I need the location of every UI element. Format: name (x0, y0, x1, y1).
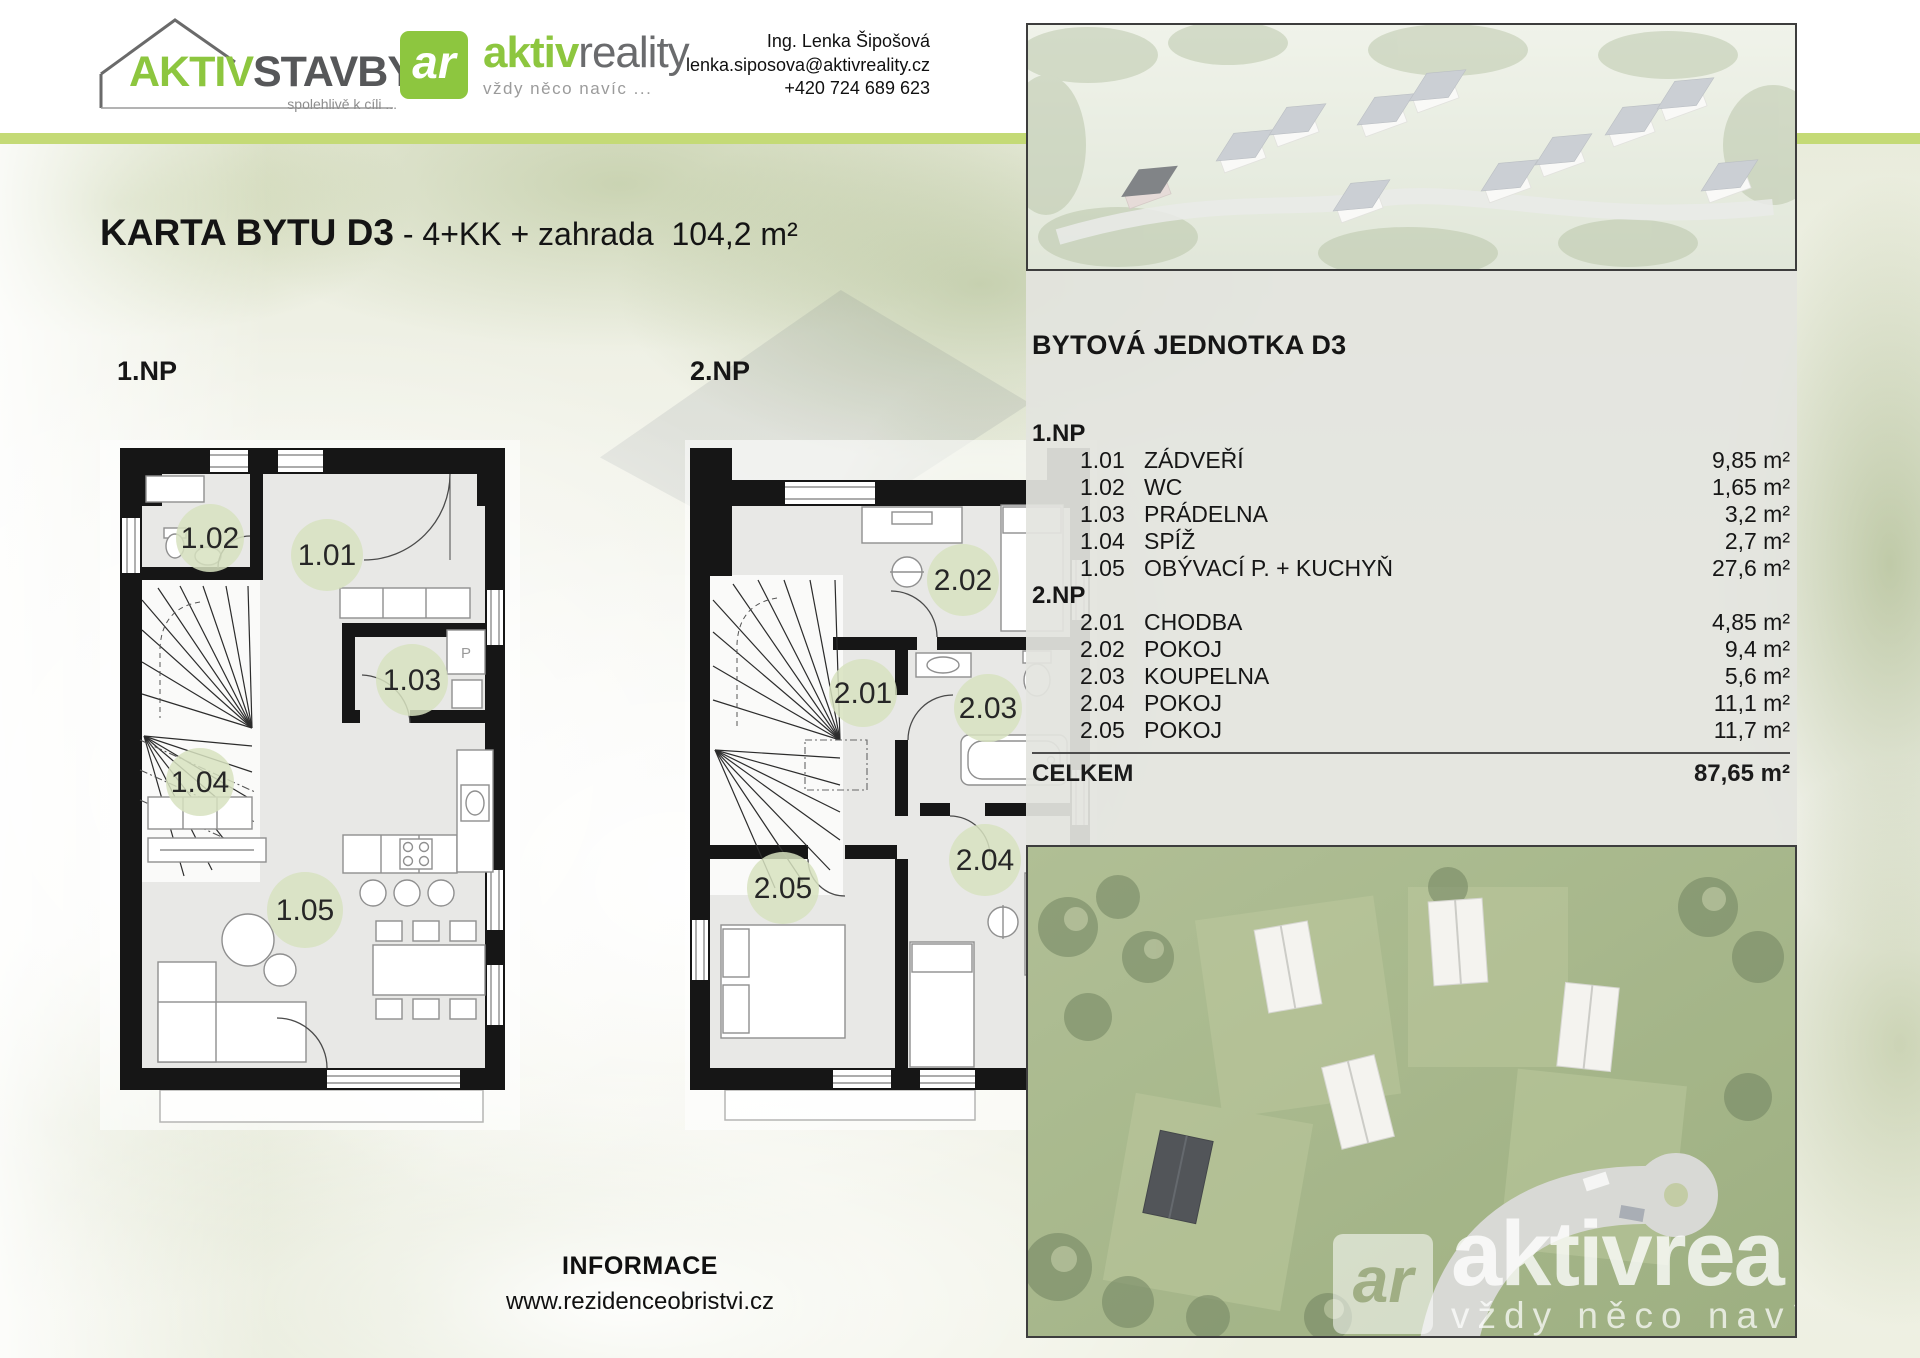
contact-name: Ing. Lenka Šipošová (620, 30, 930, 54)
contact-block: Ing. Lenka Šipošová lenka.siposova@aktiv… (620, 30, 930, 101)
watermark-tagline: vždy něco navíc ... (1451, 1297, 1797, 1334)
room-name: WC (1144, 474, 1712, 501)
room-area: 9,85 m² (1712, 447, 1790, 474)
brand-stavby: STAVBY (253, 48, 415, 96)
svg-text:2.02: 2.02 (934, 564, 992, 597)
room-label-2-05: 2.05 (747, 852, 819, 924)
room-area: 9,4 m² (1725, 636, 1790, 663)
flyer-page: AKTIVSTAVBY spolehlivě k cíli ... ar akt… (0, 0, 1920, 1358)
svg-text:1.05: 1.05 (276, 894, 334, 927)
room-code: 1.05 (1080, 555, 1144, 582)
floor-section-label: 1.NP (1032, 420, 1790, 447)
room-label-2-02: 2.02 (927, 544, 999, 616)
room-label-1-02: 1.02 (176, 504, 244, 572)
svg-text:1.02: 1.02 (181, 522, 239, 555)
houses-aerial-render (1028, 25, 1795, 269)
total-label: CELKEM (1032, 760, 1133, 788)
footer-info-label: INFORMACE (330, 1252, 950, 1281)
room-row: 2.05POKOJ11,7 m² (1032, 717, 1790, 744)
room-name: CHODBA (1144, 609, 1712, 636)
room-name: SPÍŽ (1144, 528, 1725, 555)
site-render-image (1026, 23, 1797, 271)
contact-email: lenka.siposova@aktivreality.cz (620, 54, 930, 78)
room-code: 2.05 (1080, 717, 1144, 744)
room-row: 1.05OBÝVACÍ P. + KUCHYŇ27,6 m² (1032, 555, 1790, 582)
room-code: 1.03 (1080, 501, 1144, 528)
unit-panel-heading: BYTOVÁ JEDNOTKA D3 (1032, 330, 1346, 361)
room-label-2-03: 2.03 (954, 674, 1022, 742)
room-code: 2.02 (1080, 636, 1144, 663)
room-label-1-04: 1.04 (166, 748, 234, 816)
svg-text:2.04: 2.04 (956, 844, 1014, 877)
contact-phone: +420 724 689 623 (620, 77, 930, 101)
room-row: 2.01CHODBA4,85 m² (1032, 609, 1790, 636)
svg-text:2.01: 2.01 (834, 677, 892, 710)
room-area: 5,6 m² (1725, 663, 1790, 690)
ar-monogram-icon: ar (400, 31, 468, 99)
room-area: 11,1 m² (1714, 690, 1790, 717)
room-name: POKOJ (1144, 690, 1714, 717)
aktivstavby-logo: AKTIVSTAVBY spolehlivě k cíli ... (95, 12, 397, 116)
aktivreality-watermark: ar aktivrea vždy něco navíc ... (1333, 1214, 1797, 1334)
room-row: 1.04SPÍŽ2,7 m² (1032, 528, 1790, 555)
room-code: 1.01 (1080, 447, 1144, 474)
ar-monogram-watermark-icon: ar (1333, 1234, 1433, 1334)
appliance-p-label: P (461, 645, 471, 662)
room-name: OBÝVACÍ P. + KUCHYŇ (1144, 555, 1712, 582)
unit-card-subtitle: - 4+KK + zahrada 104,2 m² (394, 216, 798, 252)
total-row: CELKEM 87,65 m² (1032, 752, 1790, 788)
room-name: POKOJ (1144, 636, 1725, 663)
watermark-brand: aktivrea (1451, 1214, 1797, 1295)
floor-section-label: 2.NP (1032, 582, 1790, 609)
unit-table: 1.NP1.01ZÁDVEŘÍ9,85 m²1.02WC1,65 m²1.03P… (1032, 420, 1790, 744)
total-area: 87,65 m² (1694, 760, 1790, 788)
room-area: 11,7 m² (1714, 717, 1790, 744)
room-label-1-01: 1.01 (291, 519, 363, 591)
topview-render-image: ar aktivrea vždy něco navíc ... (1026, 845, 1797, 1338)
brand-aktiv: AKTIV (129, 48, 253, 96)
room-name: POKOJ (1144, 717, 1714, 744)
unit-card-title: KARTA BYTU D3 (100, 212, 394, 253)
room-row: 2.02POKOJ9,4 m² (1032, 636, 1790, 663)
page-title: KARTA BYTU D3 - 4+KK + zahrada 104,2 m² (100, 212, 798, 254)
room-row: 2.04POKOJ11,1 m² (1032, 690, 1790, 717)
svg-text:1.03: 1.03 (383, 664, 441, 697)
room-code: 2.04 (1080, 690, 1144, 717)
aktivstavby-wordmark: AKTIVSTAVBY (129, 48, 415, 97)
room-area: 27,6 m² (1712, 555, 1790, 582)
room-area: 2,7 m² (1725, 528, 1790, 555)
room-label-1-05: 1.05 (267, 872, 343, 948)
svg-text:1.01: 1.01 (298, 539, 356, 572)
room-name: PRÁDELNA (1144, 501, 1725, 528)
room-row: 1.01ZÁDVEŘÍ9,85 m² (1032, 447, 1790, 474)
room-area: 4,85 m² (1712, 609, 1790, 636)
room-name: KOUPELNA (1144, 663, 1725, 690)
svg-text:2.05: 2.05 (754, 872, 812, 905)
aktivstavby-tagline: spolehlivě k cíli ... (287, 96, 397, 112)
room-row: 1.02WC1,65 m² (1032, 474, 1790, 501)
svg-text:2.03: 2.03 (959, 692, 1017, 725)
floor-label-2np: 2.NP (690, 356, 750, 387)
floor-plan-1np: 1.01 1.02 1.03 1.04 1.05 P (100, 440, 520, 1130)
floor-label-1np: 1.NP (117, 356, 177, 387)
room-label-2-01: 2.01 (829, 659, 897, 727)
room-code: 2.01 (1080, 609, 1144, 636)
svg-text:1.04: 1.04 (171, 766, 229, 799)
room-name: ZÁDVEŘÍ (1144, 447, 1712, 474)
room-area: 1,65 m² (1712, 474, 1790, 501)
room-label-2-04: 2.04 (949, 824, 1021, 896)
room-label-1-03: 1.03 (376, 644, 448, 716)
room-row: 1.03PRÁDELNA3,2 m² (1032, 501, 1790, 528)
brand-aktiv: aktiv (483, 28, 578, 77)
room-area: 3,2 m² (1725, 501, 1790, 528)
room-row: 2.03KOUPELNA5,6 m² (1032, 663, 1790, 690)
footer-info: INFORMACE www.rezidenceobristvi.cz (330, 1252, 950, 1316)
footer-website: www.rezidenceobristvi.cz (330, 1288, 950, 1316)
room-code: 1.02 (1080, 474, 1144, 501)
room-code: 2.03 (1080, 663, 1144, 690)
room-code: 1.04 (1080, 528, 1144, 555)
